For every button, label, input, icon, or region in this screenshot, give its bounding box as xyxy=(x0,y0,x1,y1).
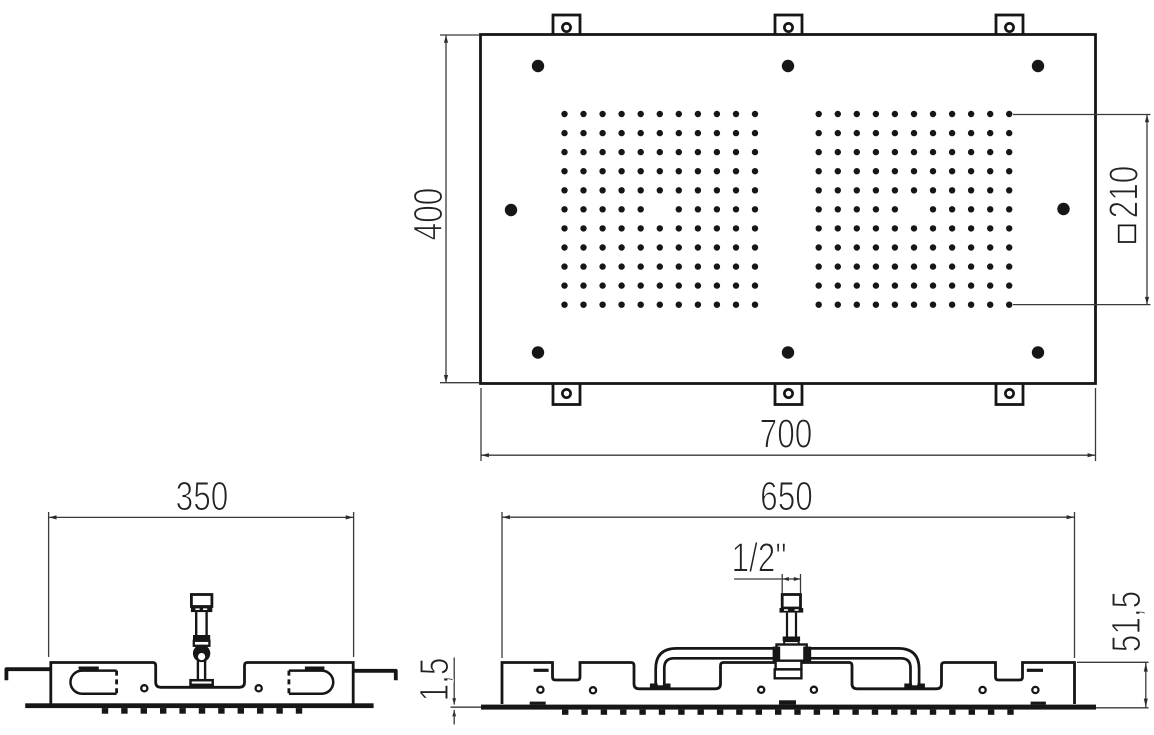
svg-text:350: 350 xyxy=(176,473,229,519)
svg-text:1,5: 1,5 xyxy=(411,658,457,702)
svg-text:400: 400 xyxy=(405,188,451,241)
svg-text:1/2": 1/2" xyxy=(731,535,786,581)
svg-text:210: 210 xyxy=(1101,166,1147,219)
svg-text:650: 650 xyxy=(760,473,813,519)
svg-text:700: 700 xyxy=(760,411,813,457)
svg-text:51,5: 51,5 xyxy=(1103,591,1149,652)
